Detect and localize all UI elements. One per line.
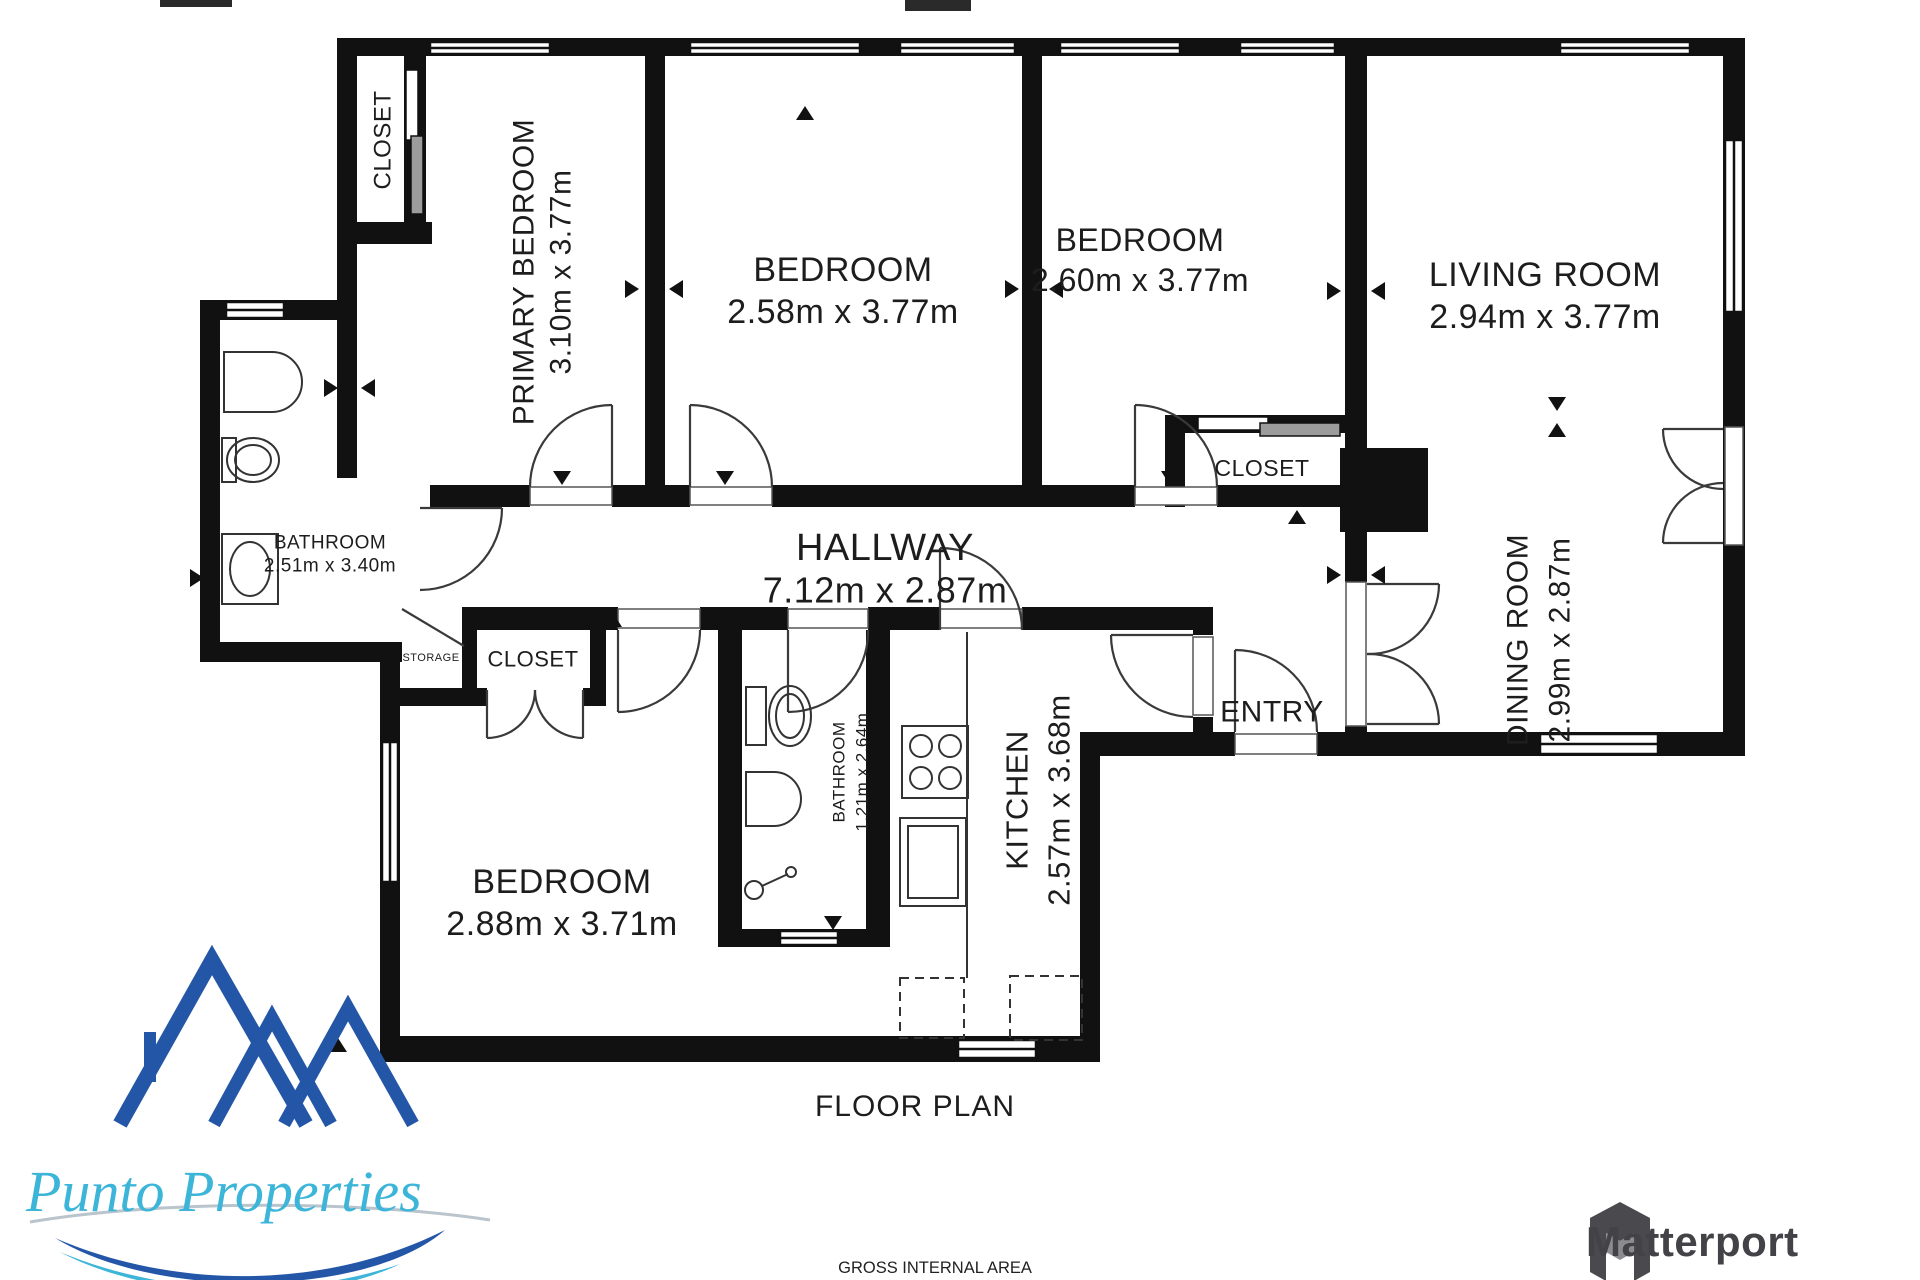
cropped-artifact xyxy=(905,0,971,11)
room-label-closet-bedroom3: CLOSET xyxy=(1214,455,1309,481)
room-label-primary-bedroom-name: PRIMARY BEDROOM xyxy=(508,119,541,425)
slider-panel xyxy=(1260,423,1340,436)
room-label-bathroom-left-name: BATHROOM xyxy=(274,533,386,554)
french-doors-dining xyxy=(1367,584,1439,724)
closet-butterfly-doors xyxy=(487,690,583,738)
toilet-icon xyxy=(746,686,811,746)
room-labels: CLOSETPRIMARY BEDROOM3.10m x 3.77mBEDROO… xyxy=(264,90,1661,943)
door-kitchen-entry xyxy=(1111,635,1193,717)
room-label-hallway-dims: 7.12m x 2.87m xyxy=(763,570,1008,611)
room-label-storage: STORAGE xyxy=(402,652,459,664)
window xyxy=(1560,42,1690,54)
room-label-kitchen-name: KITCHEN xyxy=(1000,730,1035,870)
room-label-bedroom3-name: BEDROOM xyxy=(1056,222,1225,258)
window xyxy=(1240,42,1335,54)
door-bedroom4 xyxy=(618,630,700,712)
room-label-dining-room-name: DINING ROOM xyxy=(1502,534,1535,746)
bathtub-icon xyxy=(224,352,302,412)
room-label-bedroom4-name: BEDROOM xyxy=(472,863,651,901)
area-summary: GROSS INTERNAL AREA FLOOR PLAN 93.1 m² T… xyxy=(770,1216,1100,1280)
slider-panel xyxy=(1198,417,1268,430)
room-label-bathroom-small-dims: 1.21m x 2.64m xyxy=(853,713,872,832)
room-label-bedroom4-dims: 2.88m x 3.71m xyxy=(446,905,677,943)
window xyxy=(382,742,398,882)
oven-icon xyxy=(900,818,966,906)
door-bathroom-left xyxy=(420,508,502,590)
punto-properties-wordmark: Punto Properties xyxy=(26,1158,526,1225)
window xyxy=(780,931,838,945)
room-label-bedroom2-name: BEDROOM xyxy=(753,251,932,289)
room-label-closet-bottom: CLOSET xyxy=(487,647,578,672)
room-label-dining-room-dims: 2.99m x 2.87m xyxy=(1544,538,1577,743)
room-label-bedroom2-dims: 2.58m x 3.77m xyxy=(727,293,958,331)
window xyxy=(226,302,284,318)
window xyxy=(1060,42,1180,54)
slider-panel xyxy=(411,136,423,214)
window xyxy=(900,42,1015,54)
room-label-living-room-dims: 2.94m x 3.77m xyxy=(1429,298,1660,336)
appliance-dashed xyxy=(900,978,964,1038)
window xyxy=(1725,140,1743,312)
room-label-bathroom-small-name: BATHROOM xyxy=(830,722,849,823)
room-label-kitchen-dims: 2.57m x 3.68m xyxy=(1042,694,1077,906)
room-label-living-room-name: LIVING ROOM xyxy=(1429,256,1661,294)
room-label-primary-bedroom-dims: 3.10m x 3.77m xyxy=(545,170,578,375)
french-doors-dining-right xyxy=(1663,429,1723,543)
room-label-hallway-name: HALLWAY xyxy=(796,527,974,569)
slider-panel xyxy=(406,70,418,140)
room-label-entry: ENTRY xyxy=(1220,696,1324,729)
floor-plan-canvas: CLOSETPRIMARY BEDROOM3.10m x 3.77mBEDROO… xyxy=(0,0,1920,1280)
matterport-wordmark: Matterport xyxy=(1586,1218,1799,1266)
room-label-bedroom3-dims: 2.60m x 3.77m xyxy=(1031,262,1249,298)
punto-logo xyxy=(30,960,490,1280)
area-summary-line1: GROSS INTERNAL AREA xyxy=(770,1258,1100,1279)
storage-slide-door xyxy=(402,609,464,646)
window xyxy=(690,42,860,54)
door-primary-bedroom xyxy=(530,405,612,487)
appliance-dashed xyxy=(1010,976,1082,1040)
window xyxy=(958,1040,1036,1058)
toilet-icon xyxy=(222,438,279,482)
sink-icon xyxy=(746,772,801,826)
window xyxy=(430,42,550,54)
room-label-bathroom-left-dims: 2.51m x 3.40m xyxy=(264,556,396,577)
matterport-logo: Matterport xyxy=(1586,1218,1799,1266)
punto-roof-icon xyxy=(120,960,413,1124)
page-title: FLOOR PLAN xyxy=(760,1090,1070,1124)
room-label-closet-top-left: CLOSET xyxy=(370,90,397,189)
stove-icon xyxy=(902,726,968,798)
cropped-artifact xyxy=(160,0,232,7)
shower-head-icon xyxy=(745,867,796,899)
page: { "title": { "floor_plan": "FLOOR PLAN" … xyxy=(0,0,1920,1280)
